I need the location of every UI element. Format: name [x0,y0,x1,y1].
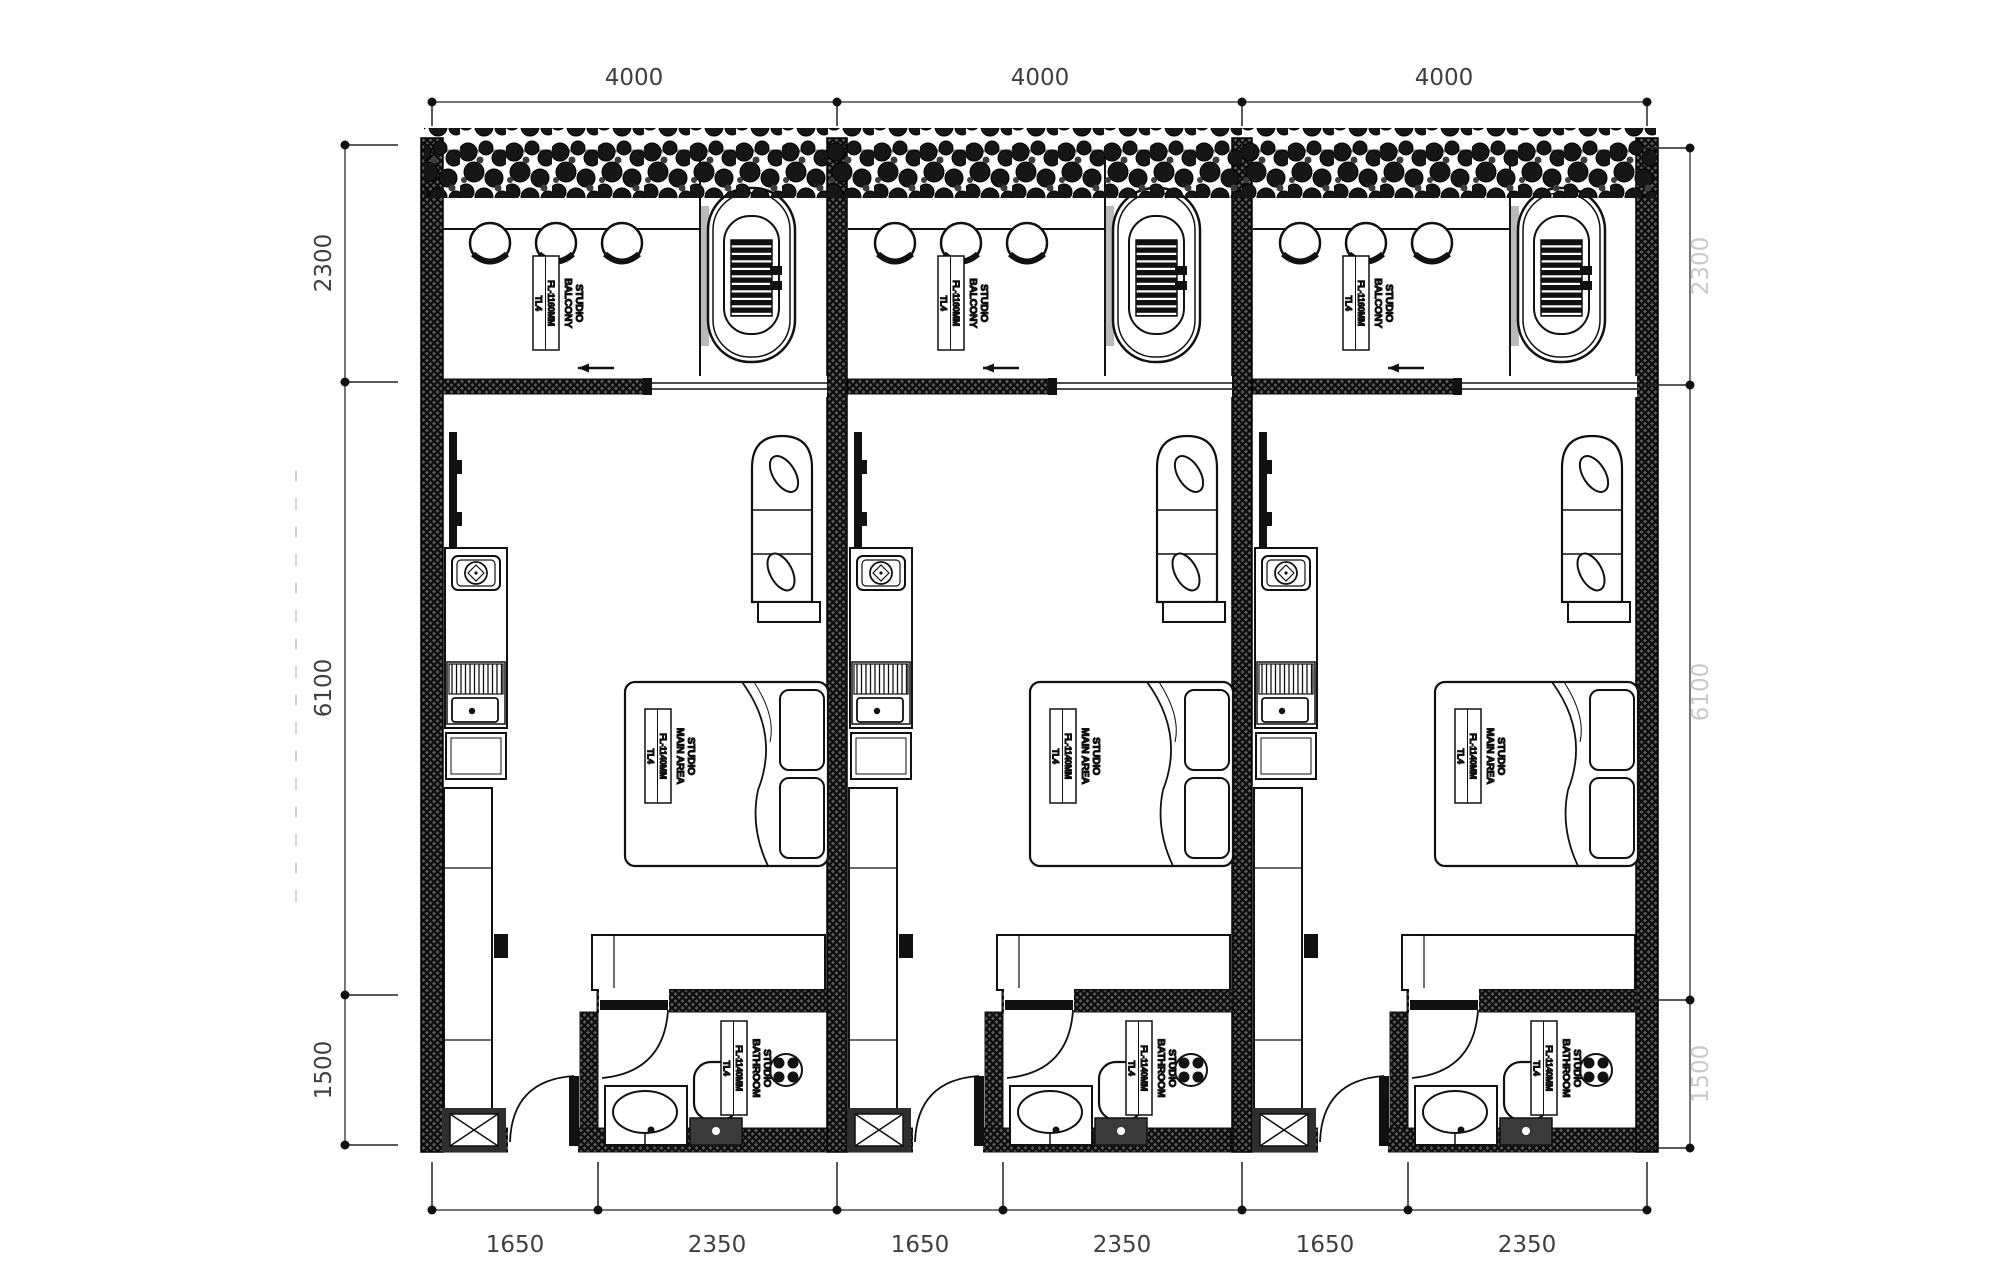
dimension-bottom: 1650 2350 1650 2350 1650 2350 [428,1162,1652,1258]
dimension-top: 4000 4000 4000 [428,65,1652,126]
party-wall [827,138,847,1152]
dim-right-3: 1500 [1688,1045,1714,1104]
dim-bottom-4: 2350 [1093,1232,1152,1258]
dimension-left: 2300 6100 1500 [311,141,398,1150]
dim-bottom-1: 1650 [486,1232,545,1258]
dim-left-2: 6100 [311,659,337,718]
dim-top-3: 4000 [1415,65,1474,91]
studio-unit-2 [847,152,1233,1156]
studio-unit-1 [442,152,828,1156]
dim-left-1: 2300 [311,234,337,293]
dim-bottom-5: 1650 [1296,1232,1355,1258]
floor-plan-drawing: STUDIO BALCONY FL-1160MM TL4 [0,0,2000,1286]
dim-bottom-3: 1650 [891,1232,950,1258]
planter-band [424,128,1656,198]
dim-top-2: 4000 [1011,65,1070,91]
dim-top-1: 4000 [605,65,664,91]
studio-unit-3 [1252,152,1638,1156]
dim-left-3: 1500 [311,1041,337,1100]
dim-right-2: 6100 [1688,663,1714,722]
floor-plan-page: STUDIO BALCONY FL-1160MM TL4 [0,0,2000,1286]
dim-right-1: 2300 [1688,237,1714,296]
party-wall [1232,138,1252,1152]
dim-bottom-6: 2350 [1498,1232,1557,1258]
dim-bottom-2: 2350 [688,1232,747,1258]
left-exterior-wall [421,138,443,1152]
